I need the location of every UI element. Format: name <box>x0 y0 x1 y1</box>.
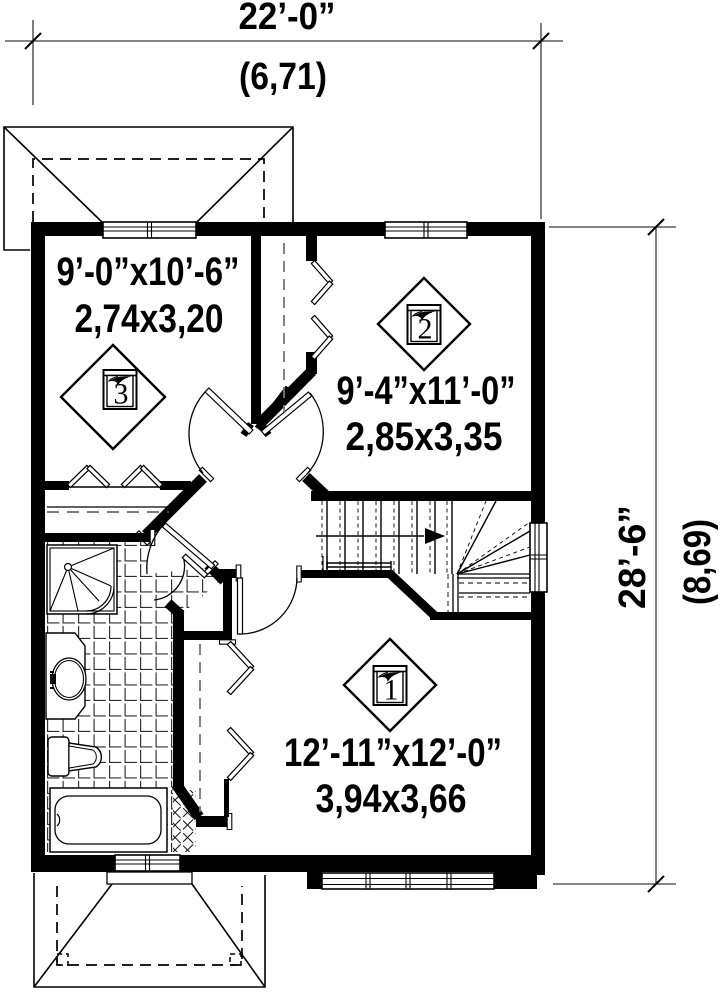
svg-text:9’-0”x10’-6”: 9’-0”x10’-6” <box>57 250 240 294</box>
svg-text:(8,69): (8,69) <box>677 519 719 605</box>
svg-text:2,74x3,20: 2,74x3,20 <box>75 297 224 341</box>
svg-text:12’-11”x12’-0”: 12’-11”x12’-0” <box>284 731 502 775</box>
svg-text:3,94x3,66: 3,94x3,66 <box>316 777 467 821</box>
svg-text:2,85x3,35: 2,85x3,35 <box>346 415 503 459</box>
svg-text:1: 1 <box>384 674 399 707</box>
svg-text:9’-4”x11’-0”: 9’-4”x11’-0” <box>337 369 516 413</box>
svg-text:2: 2 <box>418 313 433 346</box>
svg-text:(6,71): (6,71) <box>239 56 327 98</box>
svg-text:22’-0”: 22’-0” <box>239 0 336 38</box>
svg-text:28’-6”: 28’-6” <box>612 505 654 609</box>
svg-text:3: 3 <box>114 378 129 411</box>
